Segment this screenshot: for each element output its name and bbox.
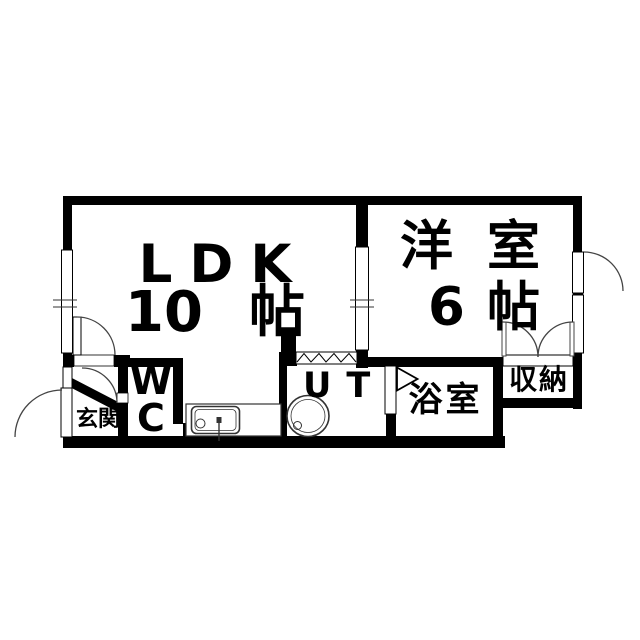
utility-label: UT — [288, 369, 374, 404]
folding-door-band — [296, 352, 357, 364]
wc-label-line2: C — [126, 400, 176, 437]
storage-label: 収納 — [501, 366, 575, 394]
entrance-label: 玄関 — [72, 409, 124, 431]
entry-door-leaf — [61, 388, 72, 437]
wall-left-upper — [63, 196, 72, 252]
ldk-size-label: 10 帖 — [125, 285, 305, 341]
wc-label: W C — [126, 363, 176, 437]
storage-door-arc-right — [538, 322, 573, 357]
wall-divider-upper — [356, 196, 368, 248]
western-room-door-leaf — [573, 252, 584, 293]
floor-plan-drawing — [0, 0, 640, 640]
window-left — [62, 250, 73, 353]
ldk-genkan-door-leaf — [73, 317, 81, 355]
western-room-size-label: 6 帖 — [428, 281, 540, 334]
western-room-size-value: 6 — [428, 281, 465, 334]
western-room-name-char1: 洋 — [400, 220, 453, 273]
wc-label-line1: W — [126, 363, 176, 400]
storage-door-leaf-right — [570, 322, 574, 356]
wall-genkan-top-left — [63, 355, 74, 367]
entry-door-frame — [63, 367, 72, 388]
ldk-genkan-door-arc — [77, 317, 115, 355]
floor-plan-canvas: LDK 10 帖 洋 室 6 帖 W C UT 浴室 収納 玄関 — [0, 0, 640, 640]
western-room-name-char2: 室 — [487, 220, 540, 273]
ldk-size-unit: 帖 — [249, 285, 305, 341]
kitchen-sink — [192, 407, 240, 434]
western-room-name-label: 洋 室 — [400, 220, 540, 273]
wall-storage-bottom — [493, 398, 582, 408]
western-room-door-arc — [584, 252, 623, 291]
bathroom-label: 浴室 — [398, 383, 490, 417]
wall-top — [63, 196, 582, 205]
bath-door-leaf — [385, 366, 396, 414]
wall-right-upper — [573, 196, 582, 252]
ldk-size-value: 10 — [125, 285, 203, 341]
genkan-ldk-opening — [74, 355, 114, 366]
entry-door-arc — [15, 390, 62, 437]
sliding-door-ldk-western — [356, 247, 369, 350]
western-room-size-unit: 帖 — [487, 281, 540, 334]
